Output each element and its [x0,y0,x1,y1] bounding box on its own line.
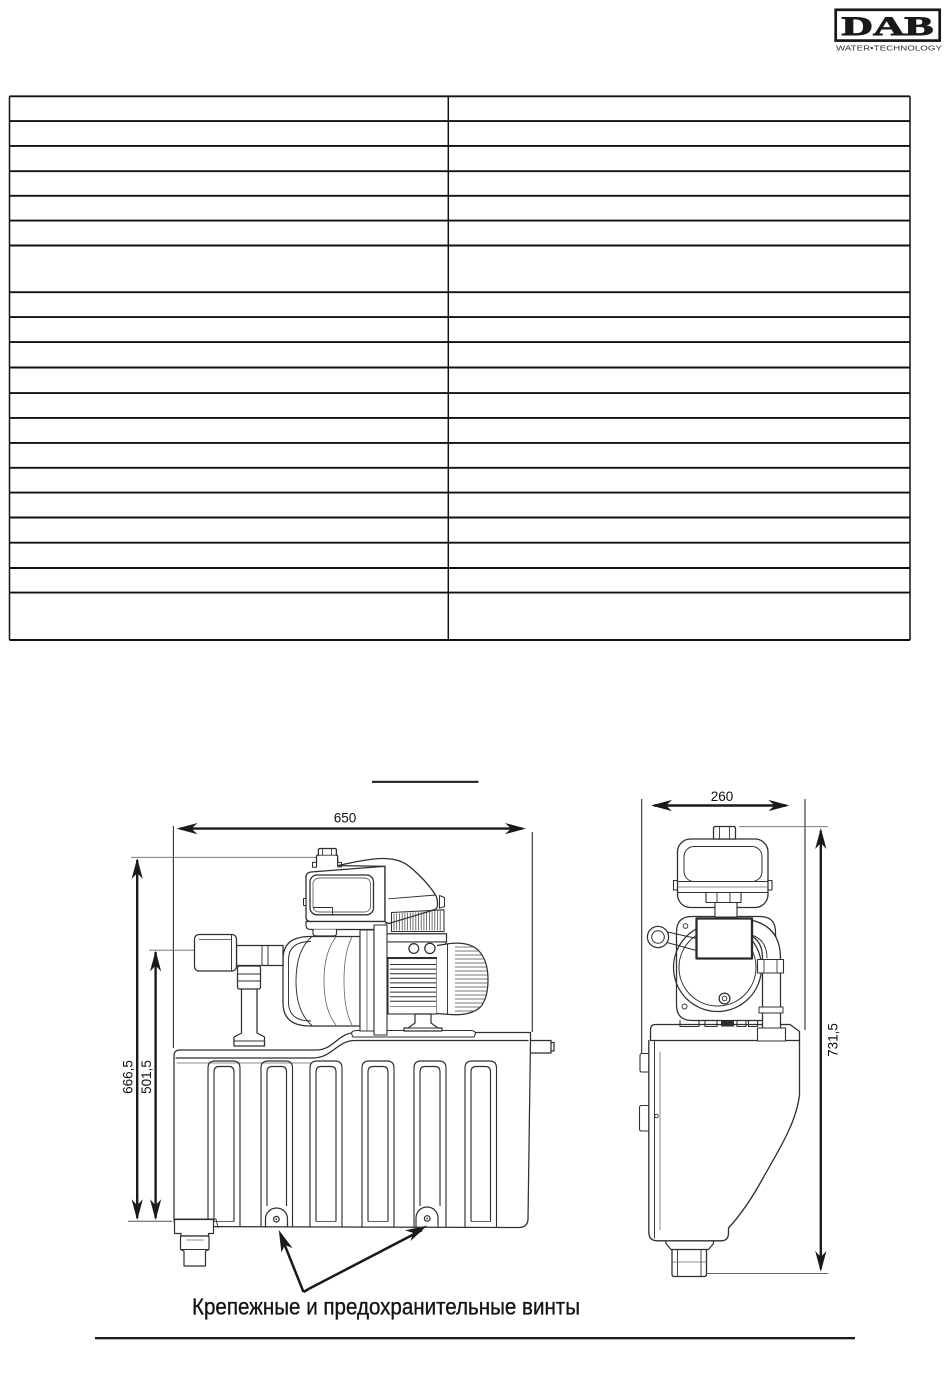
svg-text:260: 260 [711,789,734,804]
svg-text:731,5: 731,5 [826,1023,841,1057]
svg-text:Крепежные и предохранительные: Крепежные и предохранительные винты [192,1294,580,1320]
svg-text:501,5: 501,5 [139,1060,154,1094]
svg-text:WATER•TECHNOLOGY: WATER•TECHNOLOGY [836,46,943,53]
svg-text:DAB: DAB [842,11,934,41]
svg-text:650: 650 [334,811,357,826]
svg-text:666,5: 666,5 [121,1060,136,1094]
